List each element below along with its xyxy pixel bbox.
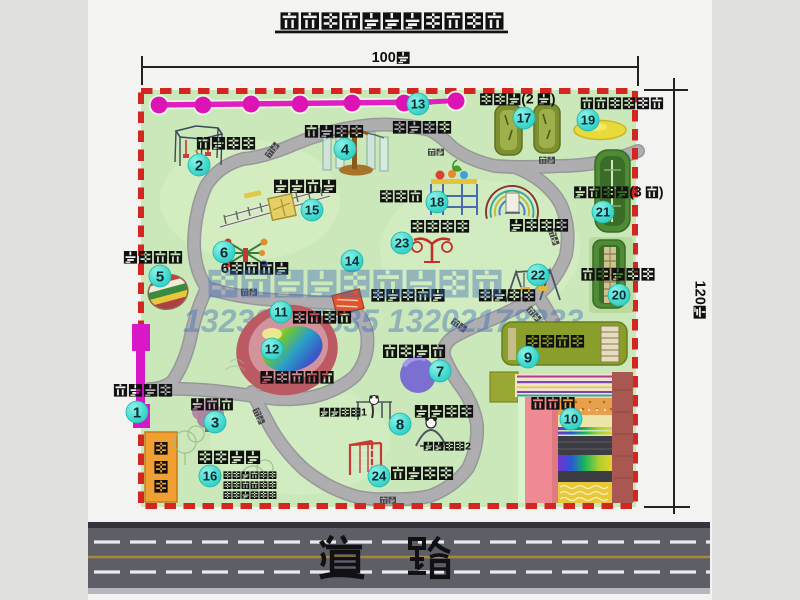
svg-text:(2: (2 bbox=[521, 91, 534, 107]
svg-text:14: 14 bbox=[345, 254, 360, 269]
svg-text:21: 21 bbox=[596, 205, 610, 220]
svg-text:17: 17 bbox=[517, 111, 531, 126]
svg-text:20: 20 bbox=[612, 288, 626, 303]
svg-text:3: 3 bbox=[211, 414, 219, 431]
svg-text:13: 13 bbox=[411, 97, 425, 112]
svg-text:1: 1 bbox=[133, 404, 141, 421]
svg-text:22: 22 bbox=[531, 268, 545, 283]
svg-text:9: 9 bbox=[524, 349, 532, 366]
svg-text:11: 11 bbox=[274, 305, 288, 320]
svg-text:(3: (3 bbox=[629, 184, 642, 200]
svg-text:): ) bbox=[551, 91, 556, 107]
svg-text:10: 10 bbox=[564, 412, 578, 427]
svg-text:): ) bbox=[659, 184, 664, 200]
svg-text:19: 19 bbox=[581, 113, 595, 128]
svg-text:15: 15 bbox=[305, 203, 319, 218]
svg-text:4: 4 bbox=[341, 141, 350, 158]
svg-text:12: 12 bbox=[265, 342, 279, 357]
svg-text:2: 2 bbox=[195, 157, 203, 174]
svg-text:24: 24 bbox=[372, 469, 387, 484]
svg-text:5: 5 bbox=[156, 268, 164, 285]
svg-text:23: 23 bbox=[395, 236, 409, 251]
svg-text:1: 1 bbox=[361, 406, 367, 418]
svg-text:100: 100 bbox=[372, 50, 396, 66]
svg-text:7: 7 bbox=[436, 363, 444, 380]
svg-text:18: 18 bbox=[430, 195, 444, 210]
svg-text:6: 6 bbox=[220, 244, 228, 261]
svg-text:8: 8 bbox=[396, 416, 404, 433]
svg-text:120: 120 bbox=[691, 281, 707, 305]
svg-text:16: 16 bbox=[203, 469, 217, 484]
svg-text:2: 2 bbox=[465, 440, 471, 452]
